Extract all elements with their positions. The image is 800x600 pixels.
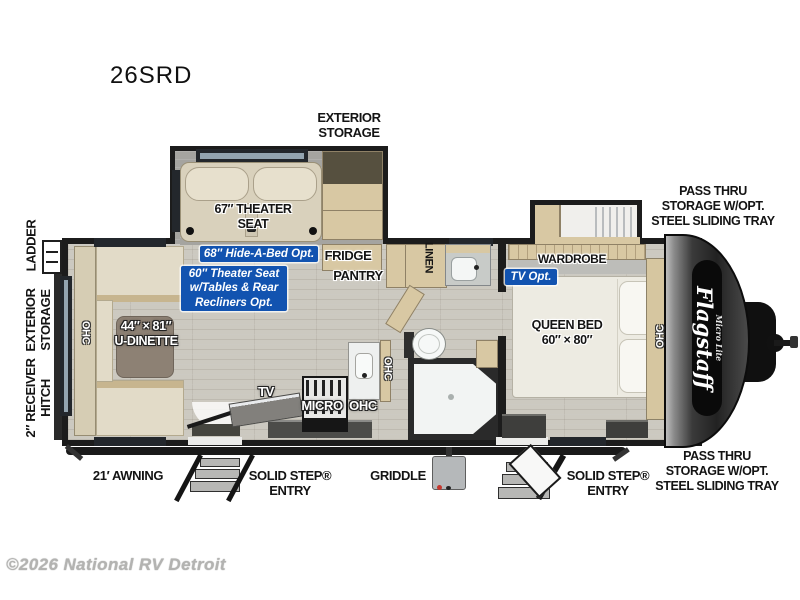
exterior-storage-cabinet xyxy=(322,151,383,240)
theater-seat-label: 67″ THEATER SEAT xyxy=(193,202,313,232)
toilet-seat xyxy=(418,334,440,354)
wire-shelf-rack xyxy=(595,207,633,241)
watermark: ©2026 National RV Detroit xyxy=(6,555,226,575)
linen-cabinet xyxy=(386,244,447,288)
bedroom-ohc-label: OHC xyxy=(655,316,668,358)
kitchen-sink-counter xyxy=(348,342,380,400)
range-base xyxy=(302,420,348,432)
fridge-label: FRIDGE xyxy=(317,248,379,263)
dinette-window-bottom xyxy=(94,437,166,446)
bath-sink xyxy=(451,257,477,281)
cabinet-open-bay xyxy=(323,152,382,184)
slideout-window xyxy=(196,149,308,163)
shower-frame xyxy=(408,358,502,440)
range-grate xyxy=(306,380,344,396)
window-glass xyxy=(64,280,68,412)
solid-step-label-right: SOLID STEP® ENTRY xyxy=(556,468,660,499)
awning-label: 21′ AWNING xyxy=(76,468,180,483)
model-title: 26SRD xyxy=(110,62,192,90)
bath-cabinet xyxy=(476,340,498,368)
theater-seat-back-left xyxy=(185,167,249,201)
exterior-storage-label-top: EXTERIOR STORAGE xyxy=(299,110,399,141)
linen-label: LINEN xyxy=(422,233,435,283)
bath-faucet xyxy=(474,265,479,270)
entry-step xyxy=(195,469,240,479)
faucet xyxy=(362,373,367,378)
solid-step-label-left: SOLID STEP® ENTRY xyxy=(238,468,342,499)
cabinet-divider xyxy=(405,245,406,287)
griddle-label: GRIDDLE xyxy=(356,468,440,483)
griddle-knob-red xyxy=(437,485,442,490)
vanity-wood-edge xyxy=(446,245,490,253)
window-glass xyxy=(200,153,304,159)
hide-a-bed-option-badge: 68″ Hide-A-Bed Opt. xyxy=(200,246,318,262)
entry-door-opening-right xyxy=(496,437,548,445)
bath-vanity xyxy=(445,244,491,286)
shower-pan xyxy=(414,364,496,434)
micro-label: MICRO xyxy=(296,398,348,413)
pantry-label: PANTRY xyxy=(325,268,391,283)
bedroom-bench-left xyxy=(502,414,546,438)
dinette-window-top xyxy=(94,238,166,247)
micro-ohc-label: OHC xyxy=(344,398,382,413)
griddle-knob xyxy=(446,486,451,490)
dinette-bench-top xyxy=(96,246,184,302)
dinette-bench-bottom xyxy=(96,380,184,436)
theater-seat-option-badge: 60″ Theater Seat w/Tables & Rear Recline… xyxy=(181,266,287,311)
bedroom-bench-right xyxy=(606,420,648,438)
ladder-label: LADDER xyxy=(24,214,37,278)
ladder-rung xyxy=(46,251,58,253)
kitchen-ohc-label: OHC xyxy=(381,349,394,389)
shower-drain xyxy=(448,394,454,400)
queen-bed-label: QUEEN BED 60″ × 80″ xyxy=(514,318,620,348)
entry-step xyxy=(200,458,240,467)
tv-label: TV xyxy=(246,384,286,399)
cabinet-shelf-line xyxy=(323,210,382,211)
entry-door-opening-left xyxy=(188,437,242,445)
tv-option-badge: TV Opt. xyxy=(505,269,557,285)
brand-sublogo: Micro Lite xyxy=(714,300,724,376)
floorplan-canvas: 26SRD 67″ THEATER SEAT xyxy=(0,0,800,600)
dinette-ohc-label: OHC xyxy=(79,313,92,353)
toilet xyxy=(412,328,446,360)
rear-window xyxy=(60,276,72,416)
pass-thru-label-top: PASS THRU STORAGE W/OPT. STEEL SLIDING T… xyxy=(630,184,796,228)
wardrobe-label: WARDROBE xyxy=(518,252,626,266)
awning-rail xyxy=(66,447,626,455)
bedroom-window xyxy=(550,437,606,446)
theater-seat-back-right xyxy=(253,167,317,201)
exterior-storage-label-left: EXTERIOR STORAGE xyxy=(23,281,49,359)
ladder-rung xyxy=(46,261,58,263)
receiver-hitch-label: 2″ RECEIVER HITCH xyxy=(23,354,49,442)
ladder-icon xyxy=(42,240,62,274)
bath-wall-upper xyxy=(498,244,506,292)
dinette-label: 44″ × 81″ U-DINETTE xyxy=(96,319,196,349)
hitch-coupler xyxy=(790,336,798,348)
bench-wood-trim xyxy=(97,381,183,388)
